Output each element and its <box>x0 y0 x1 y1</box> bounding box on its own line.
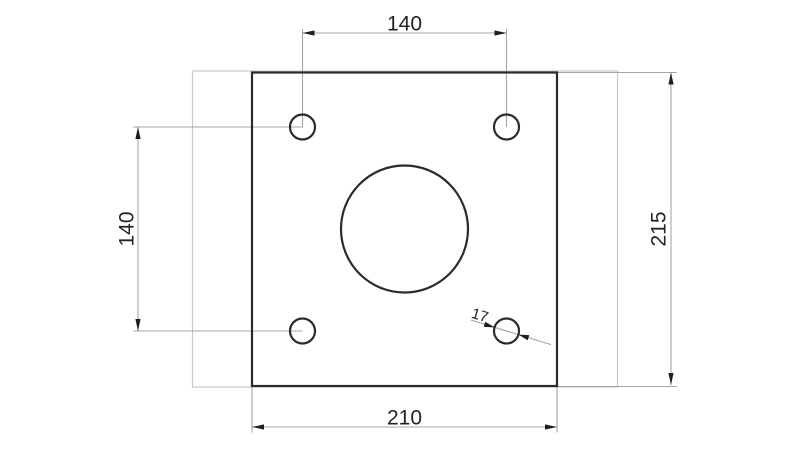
dimension-label-top-hole-spacing: 140 <box>387 13 422 36</box>
plate-fill <box>252 73 557 387</box>
dimension-label-plate-width: 210 <box>387 407 422 430</box>
drawing-page: 140 140 215 210 17 <box>0 0 800 450</box>
dimension-label-left-hole-spacing: 140 <box>116 211 139 246</box>
dimension-label-plate-height: 215 <box>648 211 671 246</box>
technical-drawing-canvas: 140 140 215 210 17 <box>0 0 800 450</box>
